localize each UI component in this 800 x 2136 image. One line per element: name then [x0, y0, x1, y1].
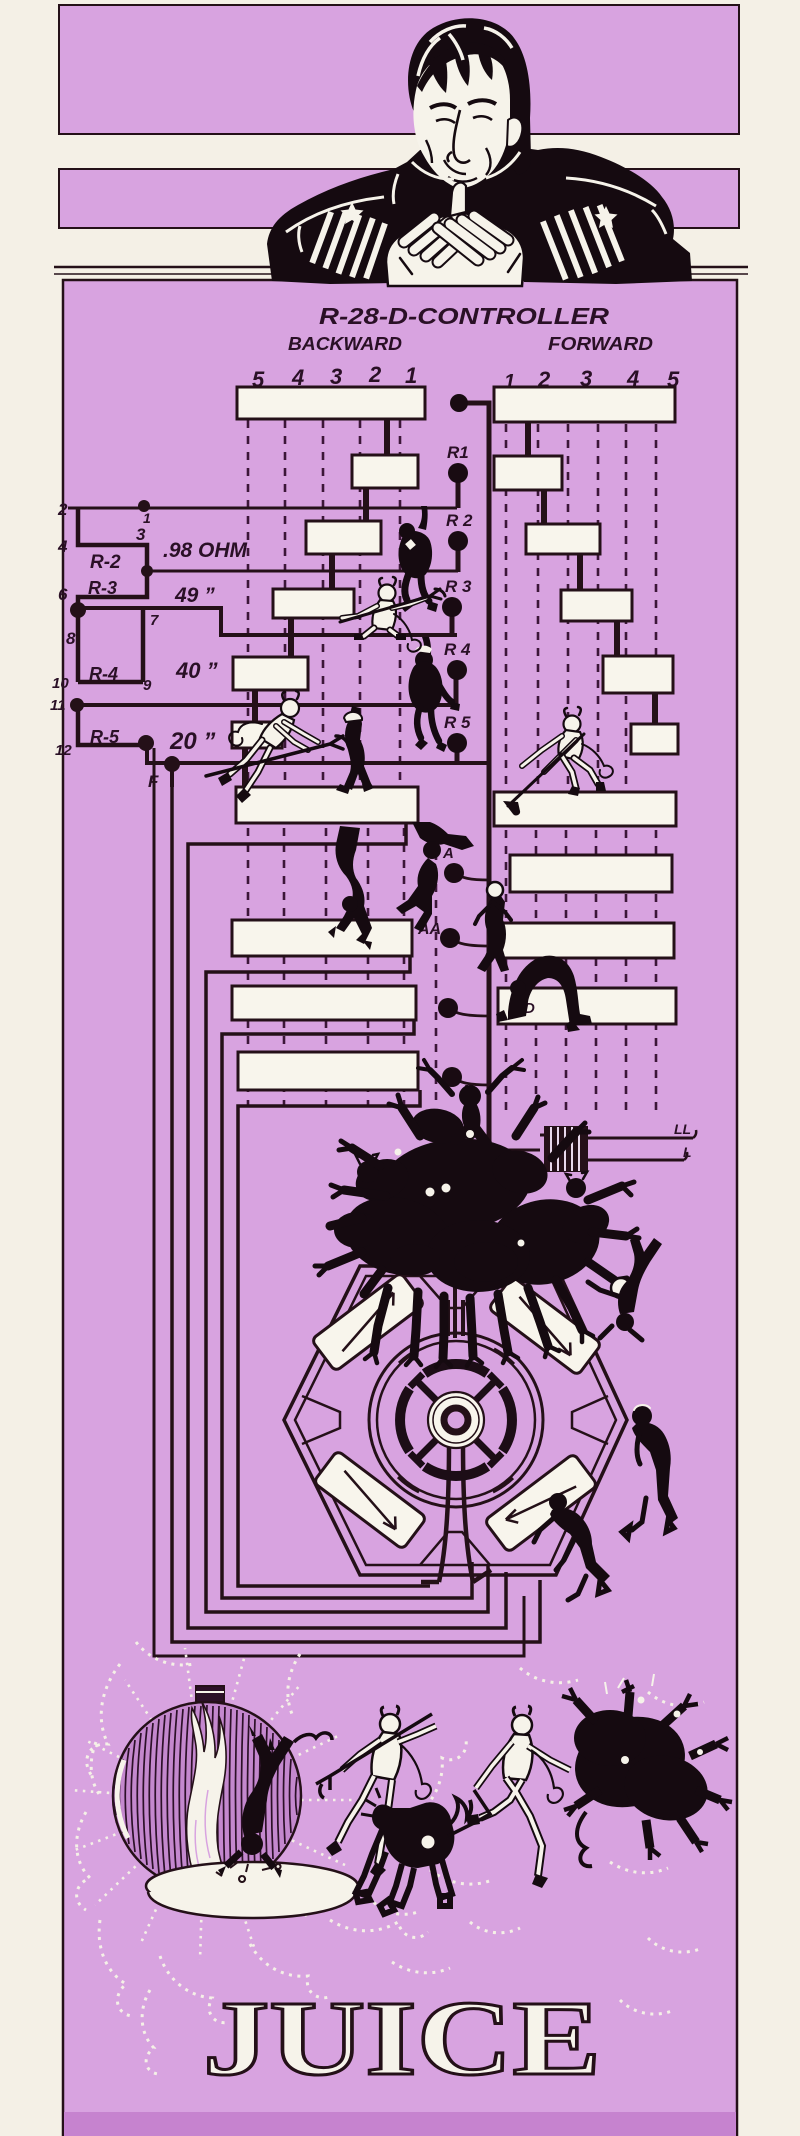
svg-text:R-28-D-CONTROLLER: R-28-D-CONTROLLER: [319, 303, 609, 329]
svg-text:3: 3: [136, 525, 146, 544]
svg-text:R1: R1: [447, 443, 469, 462]
svg-text:R-2: R-2: [90, 552, 121, 573]
svg-text:R-4: R-4: [89, 664, 118, 684]
svg-text:49 ”: 49 ”: [174, 584, 215, 607]
svg-text:L: L: [683, 1144, 692, 1160]
svg-text:6: 6: [58, 585, 68, 604]
svg-text:R 3: R 3: [445, 577, 472, 596]
svg-text:R-5: R-5: [90, 727, 120, 747]
svg-text:1: 1: [405, 363, 417, 388]
svg-text:40 ”: 40 ”: [175, 658, 218, 683]
svg-text:LL: LL: [674, 1121, 691, 1137]
svg-text:11: 11: [50, 697, 66, 714]
svg-text:.98 OHM: .98 OHM: [163, 539, 248, 562]
svg-text:R 4: R 4: [444, 640, 471, 659]
svg-text:2: 2: [57, 500, 68, 519]
svg-text:R-3: R-3: [88, 578, 117, 598]
svg-text:10: 10: [52, 675, 69, 692]
svg-text:12: 12: [55, 742, 72, 759]
svg-text:FORWARD: FORWARD: [548, 334, 653, 354]
svg-text:R 2: R 2: [446, 511, 473, 530]
svg-text:R 5: R 5: [444, 713, 471, 732]
svg-text:A: A: [442, 845, 454, 862]
svg-text:9: 9: [143, 677, 152, 694]
svg-text:2: 2: [368, 362, 382, 387]
svg-text:8: 8: [66, 629, 76, 648]
svg-text:JUICE: JUICE: [203, 1980, 601, 2098]
svg-text:7: 7: [150, 612, 159, 629]
svg-text:1: 1: [143, 510, 151, 526]
svg-text:BACKWARD: BACKWARD: [288, 334, 402, 354]
svg-text:4: 4: [57, 537, 68, 556]
svg-text:3: 3: [330, 364, 342, 389]
svg-text:20 ”: 20 ”: [169, 728, 215, 755]
